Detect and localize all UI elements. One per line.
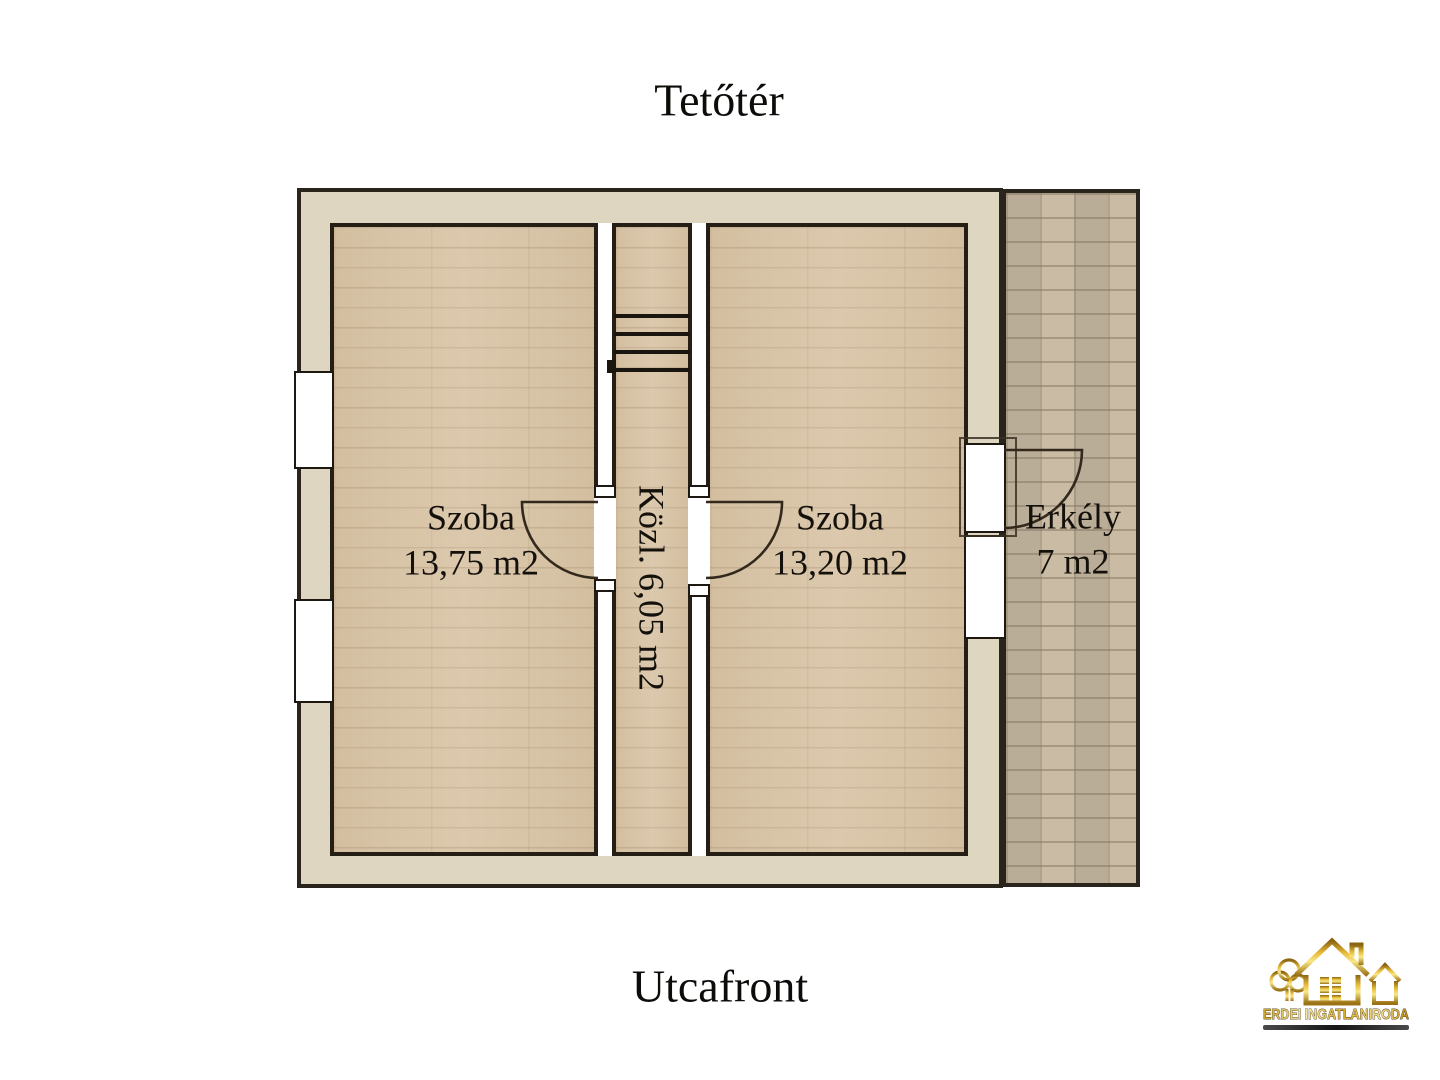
room-area: 13,75 m2	[403, 541, 539, 586]
stair-start-marker	[607, 360, 616, 373]
agency-logo: ERDEI INGATLANIRODA	[1260, 933, 1412, 1033]
balcony-area-value: 7 m2	[1025, 540, 1121, 585]
room-area: 13,20 m2	[772, 541, 908, 586]
window-left-upper	[294, 371, 334, 469]
floor-title: Tetőtér	[654, 74, 784, 127]
balcony-door-frame	[959, 437, 1017, 537]
floor-plan-canvas: Tetőtér Utcafront Szoba 13,75 m2 Szoba	[0, 0, 1440, 1080]
door-jamb	[688, 584, 710, 597]
window-left-lower	[294, 599, 334, 703]
agency-logo-text: ERDEI INGATLANIRODA	[1263, 1006, 1409, 1023]
door-jamb	[594, 485, 616, 498]
door-opening-right-room	[688, 497, 710, 586]
stair-tread	[614, 368, 690, 372]
room-name: Szoba	[772, 496, 908, 541]
house-icon	[1296, 941, 1368, 1003]
room-left-label: Szoba 13,75 m2	[403, 496, 539, 587]
tree-icon	[1271, 960, 1306, 1001]
corridor-label: Közl. 6,05 m2	[628, 485, 673, 691]
door-jamb	[594, 579, 616, 592]
door-jamb	[688, 485, 710, 498]
room-right-label: Szoba 13,20 m2	[772, 496, 908, 587]
balcony-label: Erkély 7 m2	[1025, 495, 1121, 586]
street-front-label: Utcafront	[632, 960, 808, 1013]
stair-tread	[614, 350, 690, 354]
door-opening-left-room	[594, 497, 616, 581]
stair-tread	[614, 314, 690, 318]
window-right	[964, 535, 1006, 639]
room-name: Szoba	[403, 496, 539, 541]
house-window-icon	[1320, 977, 1341, 1002]
small-house-icon	[1370, 965, 1400, 1003]
logo-shadow-bar	[1263, 1025, 1409, 1030]
stair-tread	[614, 332, 690, 336]
balcony-name: Erkély	[1025, 495, 1121, 540]
